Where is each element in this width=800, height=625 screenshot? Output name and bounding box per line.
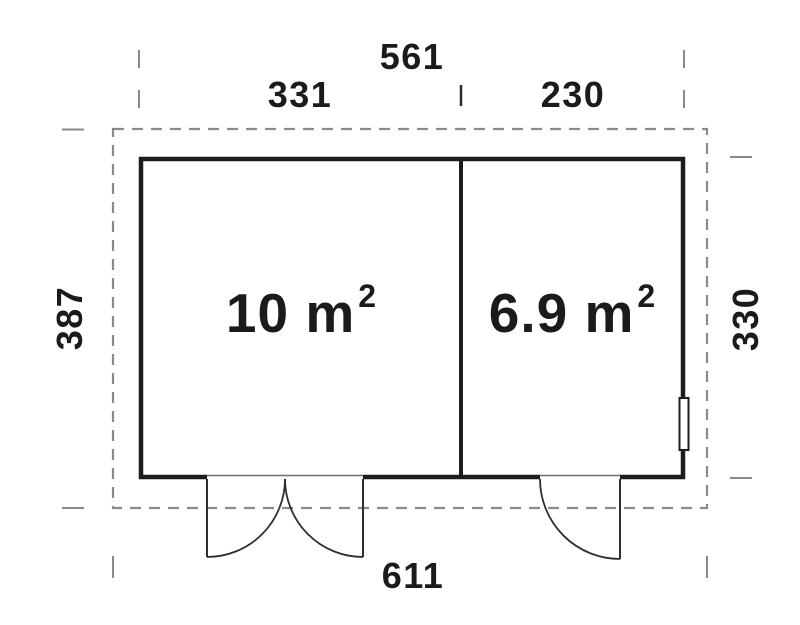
room-area-label-left: 10 m2 [143, 161, 459, 475]
room-area-exponent: 2 [358, 278, 376, 314]
room-area-exponent: 2 [637, 278, 655, 314]
dim-label-bottom-width: 611 [382, 558, 445, 594]
dim-label-right-height: 330 [728, 287, 764, 352]
room-area-label-right: 6.9 m2 [463, 161, 681, 475]
floor-plan-canvas: 561 331 230 387 330 611 10 m2 6.9 m2 [0, 0, 800, 625]
single-door-swing-arc [540, 479, 620, 559]
double-door-right-swing-arc [285, 479, 363, 557]
double-door-left-swing-arc [207, 479, 285, 557]
dim-label-left-height: 387 [52, 286, 88, 351]
dim-label-right-section-width: 230 [541, 77, 606, 113]
room-area-value: 10 m [226, 282, 355, 344]
dim-label-left-section-width: 331 [268, 77, 333, 113]
room-area-value: 6.9 m [489, 282, 635, 344]
dim-label-overall-width: 561 [380, 39, 445, 75]
